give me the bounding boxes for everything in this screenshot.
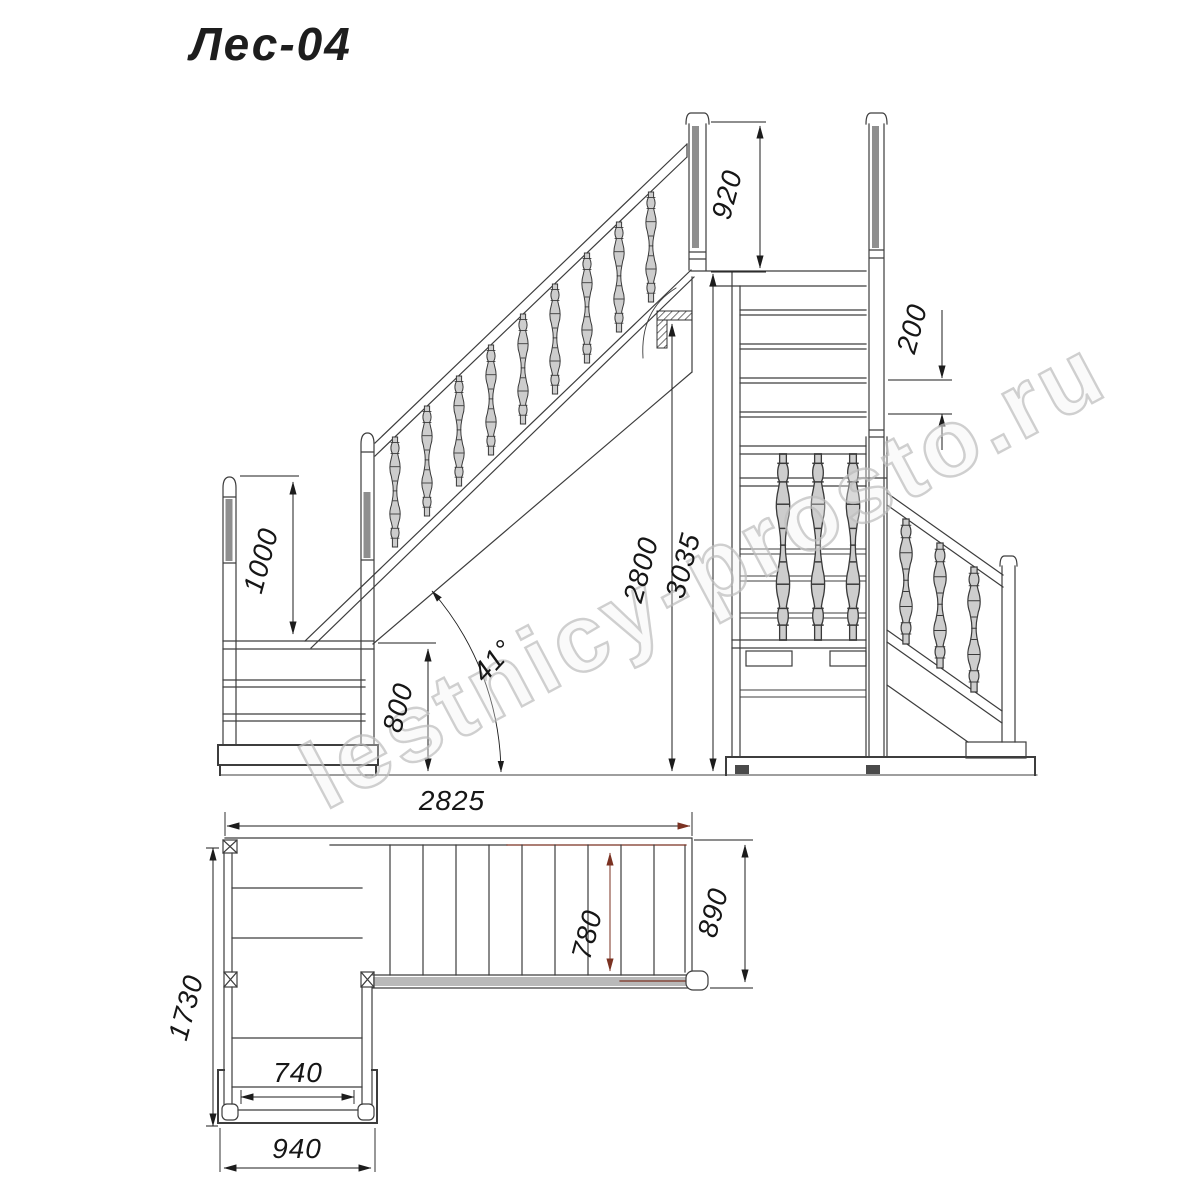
dim-940: 940 (272, 1133, 322, 1164)
dim-740: 740 (273, 1057, 323, 1088)
rear-plinth (726, 757, 1035, 775)
dim-1730: 1730 (162, 972, 209, 1044)
floor-hatch-h (657, 311, 692, 320)
dim-2825: 2825 (418, 785, 485, 816)
dim-920: 920 (705, 167, 748, 223)
dim-1000: 1000 (237, 525, 284, 597)
dim-890: 890 (691, 885, 734, 941)
floor-hatch-v (657, 320, 667, 348)
floor-line (691, 271, 866, 286)
drawing-title: Лес-04 (187, 18, 352, 70)
plan-upper-treads (390, 845, 654, 975)
rear-flight-balusters (900, 519, 980, 692)
handrail (375, 144, 687, 456)
dim-200: 200 (890, 301, 933, 358)
rear-treads (740, 310, 866, 417)
dim-780: 780 (565, 907, 608, 963)
side-balusters (390, 192, 656, 547)
watermark: lestnicy-prosto.ru (285, 317, 1123, 830)
staircase-drawing: Лес-04 lestnicy-prosto.ru 920 1000 800 2… (0, 0, 1200, 1200)
blueprint-page: Лес-04 lestnicy-prosto.ru 920 1000 800 2… (0, 0, 1200, 1200)
